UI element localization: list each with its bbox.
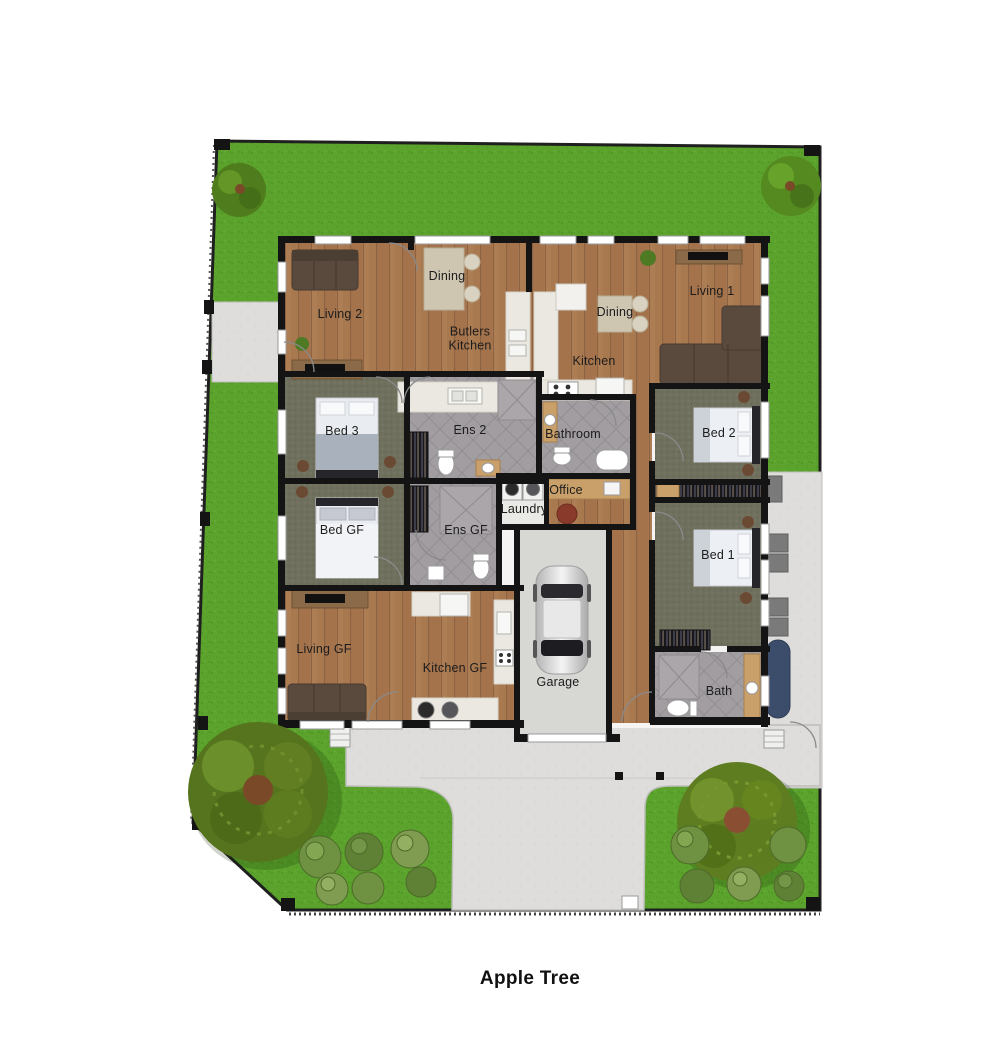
car <box>533 566 591 674</box>
tv-unit-living-gf <box>292 590 368 608</box>
side-patio-left <box>212 302 282 382</box>
room-label-butlers-kitchen: Butlers Kitchen <box>438 325 502 353</box>
tv-unit-living-1 <box>676 250 742 264</box>
room-label-kitchen-gf: Kitchen GF <box>423 662 488 676</box>
sofa-living-gf <box>288 684 366 722</box>
room-label-office: Office <box>549 484 583 498</box>
room-label-ens-gf: Ens GF <box>444 524 488 538</box>
room-label-living-gf: Living GF <box>296 643 351 657</box>
plant-living-1 <box>640 250 656 266</box>
tree-small-top-left <box>212 163 266 217</box>
room-label-bed-2: Bed 2 <box>702 427 736 441</box>
floor-plan-svg <box>0 0 1000 1053</box>
room-label-dining-right: Dining <box>597 306 634 320</box>
room-label-bathroom: Bathroom <box>545 428 601 442</box>
plan-title: Apple Tree <box>480 968 580 990</box>
room-label-garage: Garage <box>537 676 580 690</box>
floor-plan-page: Living 2 Dining Butlers Kitchen Dining L… <box>0 0 1000 1053</box>
robe-cabinet <box>657 484 679 499</box>
room-label-bed-3: Bed 3 <box>325 425 359 439</box>
room-label-living-1: Living 1 <box>690 285 735 299</box>
sofa-living-2 <box>292 250 358 290</box>
room-label-ens-2: Ens 2 <box>454 424 487 438</box>
room-label-dining-left: Dining <box>429 270 466 284</box>
room-label-bath: Bath <box>706 685 733 699</box>
letterbox <box>622 896 638 909</box>
room-label-living-2: Living 2 <box>318 308 363 322</box>
room-label-bed-1: Bed 1 <box>701 549 735 563</box>
room-label-laundry: Laundry <box>501 503 548 517</box>
room-label-kitchen: Kitchen <box>572 355 615 369</box>
plant-living-2 <box>295 337 309 351</box>
tree-small-top-right <box>761 156 821 216</box>
room-label-bed-gf: Bed GF <box>320 524 364 538</box>
